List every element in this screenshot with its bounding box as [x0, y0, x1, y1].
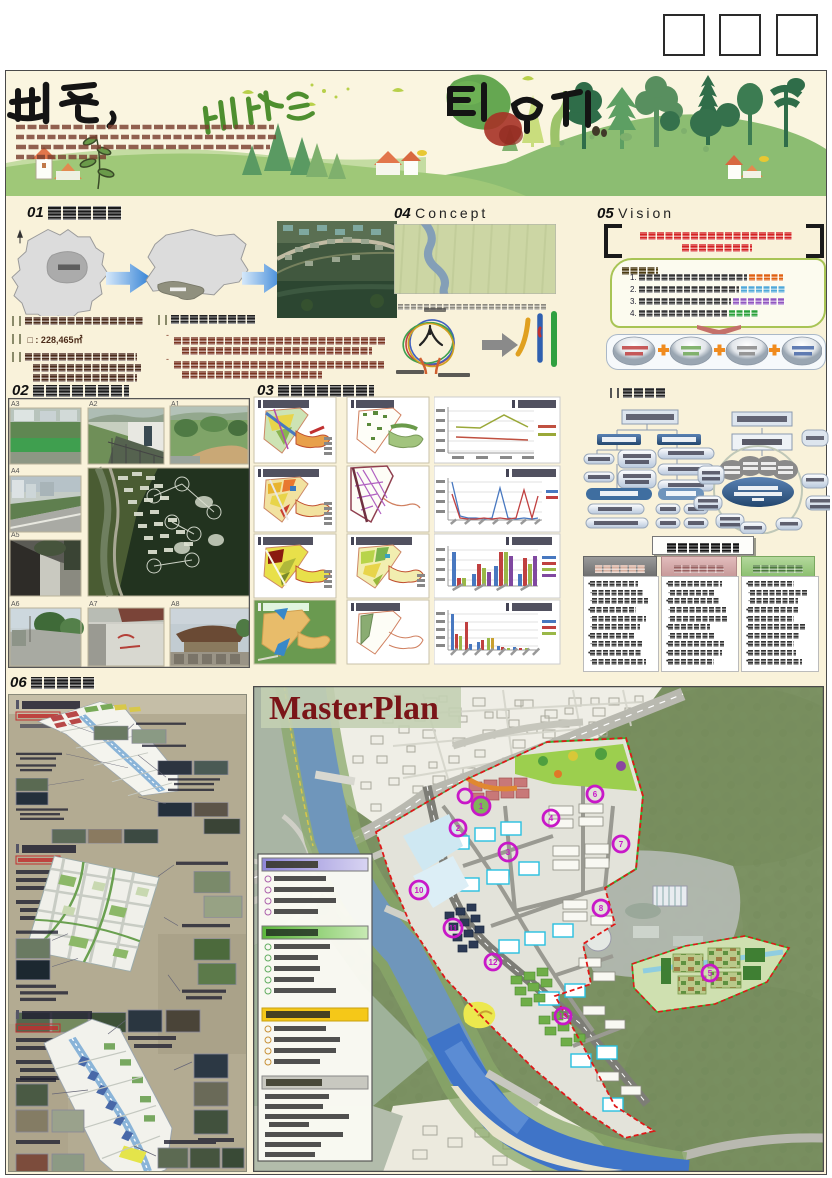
svg-text:A2: A2	[89, 401, 98, 408]
svg-text:8: 8	[599, 904, 604, 913]
svg-text:A3: A3	[11, 401, 20, 408]
svg-text:A7: A7	[89, 601, 98, 608]
svg-text:11: 11	[449, 924, 458, 933]
svg-text:13: 13	[559, 1012, 568, 1021]
svg-text:7: 7	[619, 840, 624, 849]
svg-text:12: 12	[489, 958, 498, 967]
svg-text:A4: A4	[11, 468, 20, 475]
svg-text:6: 6	[593, 790, 598, 799]
svg-text:A5: A5	[11, 532, 20, 539]
svg-text:4: 4	[549, 814, 554, 823]
svg-text:10: 10	[415, 886, 424, 895]
svg-text:1: 1	[479, 802, 484, 811]
svg-text:2: 2	[456, 824, 461, 833]
svg-text:3: 3	[506, 848, 511, 857]
svg-text:MasterPlan: MasterPlan	[269, 690, 439, 727]
svg-text:A6: A6	[11, 601, 20, 608]
svg-text:A8: A8	[171, 601, 180, 608]
svg-text:5: 5	[708, 969, 713, 978]
